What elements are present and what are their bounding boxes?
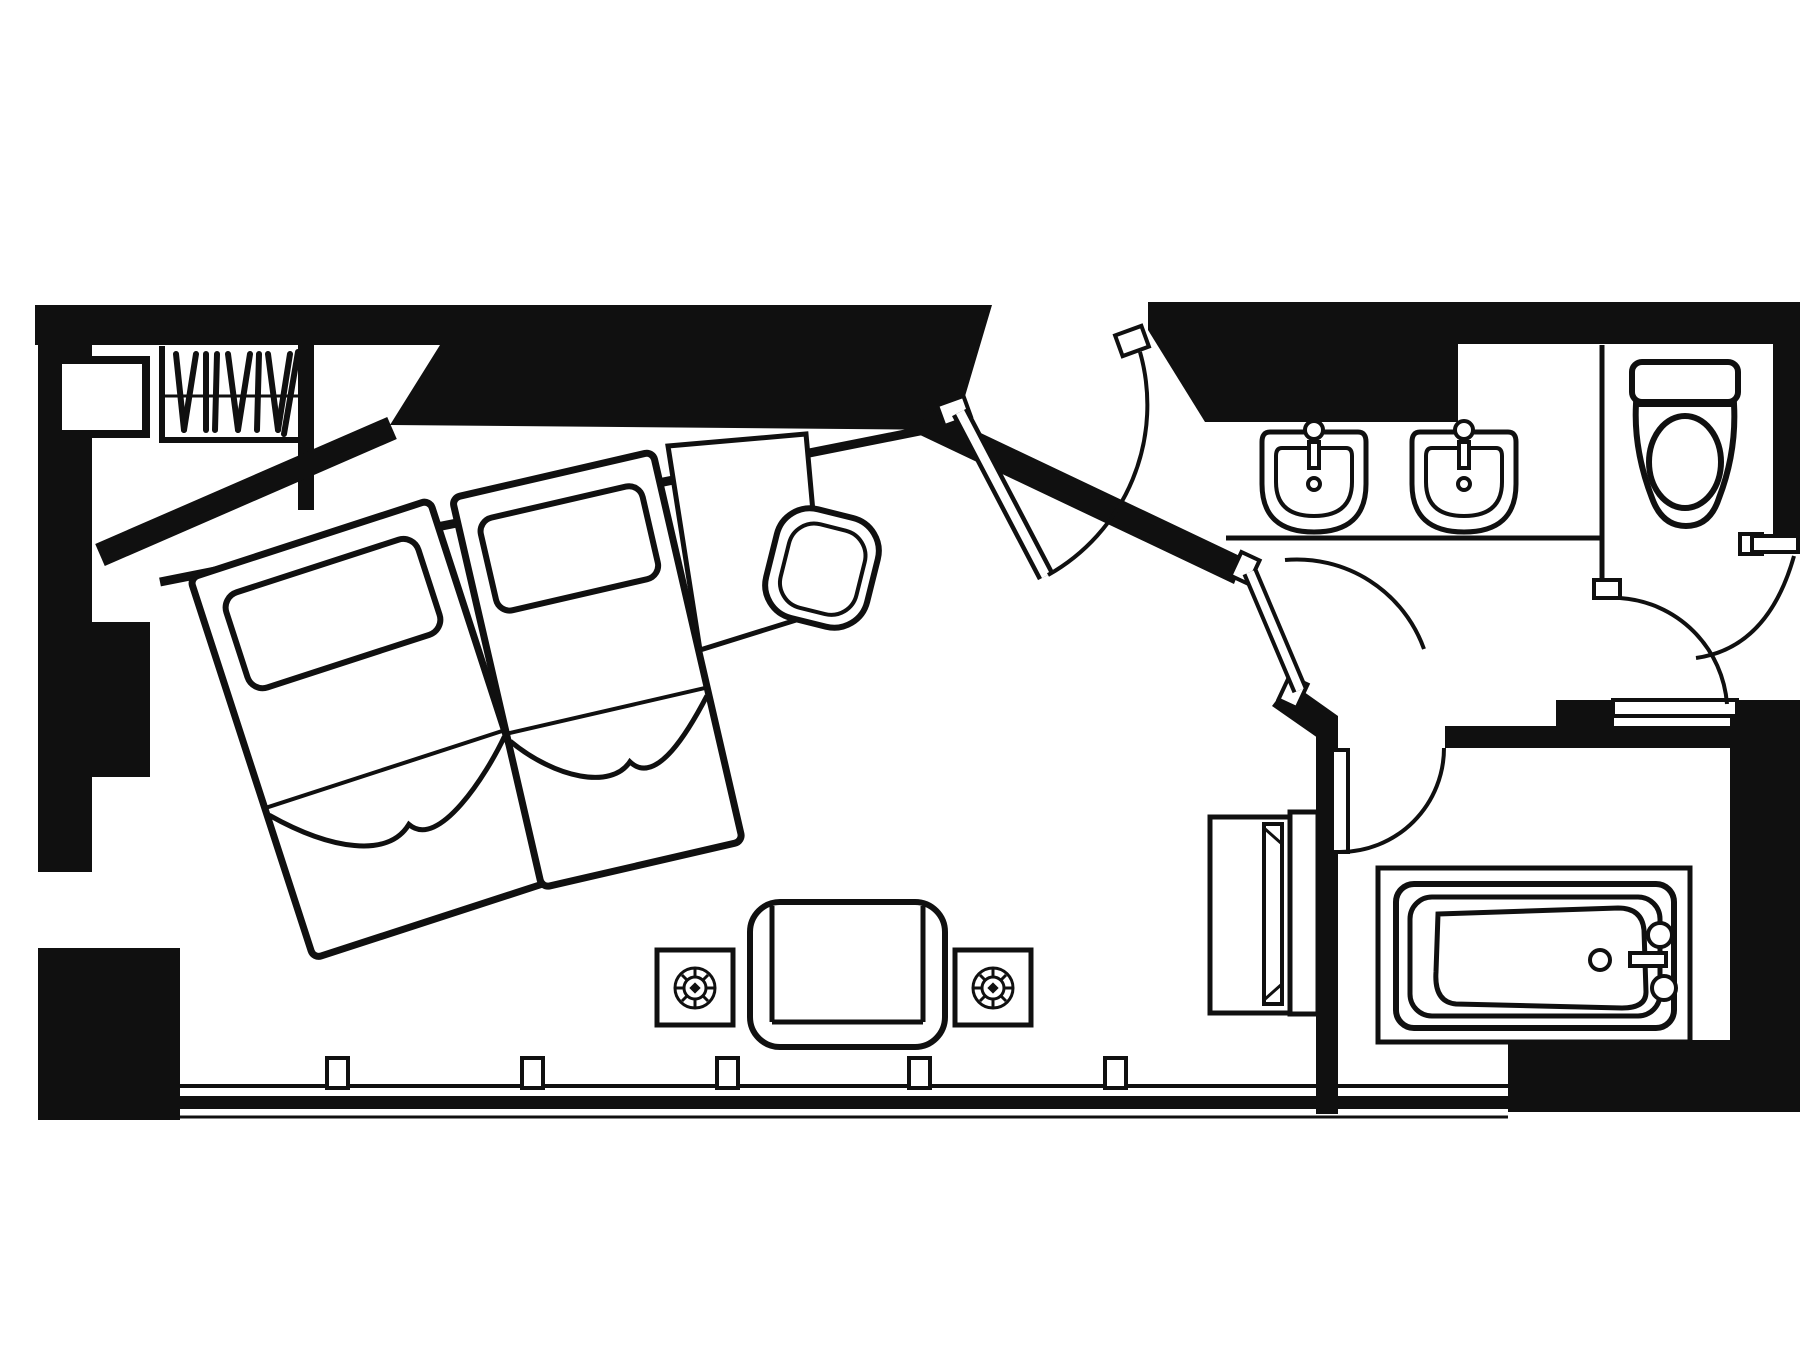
bathtub-room-door xyxy=(1332,748,1444,852)
floor-plan-page xyxy=(0,0,1800,1350)
left-wall-bottom-block xyxy=(38,948,180,1120)
side-table-with-lamp-right xyxy=(955,950,1031,1025)
sink-faucet xyxy=(1455,421,1473,439)
sofa-group xyxy=(657,902,1031,1047)
closet-nook xyxy=(58,346,302,440)
sink-drain xyxy=(1458,478,1470,490)
sink-faucet-stem xyxy=(1459,442,1469,468)
door-leaf xyxy=(1752,536,1798,552)
bottom-right-wall xyxy=(1508,1040,1733,1112)
door-swing-arc xyxy=(1340,748,1444,852)
window-glazing-band xyxy=(180,1096,1508,1109)
door-swing-arc xyxy=(1285,559,1424,649)
tub-faucet-bar xyxy=(1630,953,1666,966)
hangers xyxy=(176,352,298,434)
door-leaf xyxy=(1332,750,1348,852)
door-leaf xyxy=(1613,700,1737,716)
door-leaf-core xyxy=(1250,572,1300,690)
tub-faucet-knob xyxy=(1652,976,1676,1000)
toilet-room-door xyxy=(1594,580,1737,716)
mullion-post xyxy=(717,1058,738,1088)
side-table-with-lamp-left xyxy=(657,950,733,1025)
toilet-seat xyxy=(1649,416,1721,508)
door-hinge-jamb xyxy=(1115,326,1149,356)
vanity-sinks xyxy=(1262,421,1516,532)
sink-faucet xyxy=(1305,421,1323,439)
tub-faucet-knob xyxy=(1648,923,1672,947)
toilet-top-wall xyxy=(1458,302,1773,344)
tv-cabinet-group xyxy=(1210,812,1318,1014)
right-closet-door xyxy=(1696,534,1798,658)
desk-area xyxy=(668,434,886,650)
sink-left xyxy=(1262,421,1366,532)
mullion-post xyxy=(522,1058,543,1088)
mullion-post xyxy=(327,1058,348,1088)
right-wall-upper xyxy=(1773,302,1800,545)
table-lamp-icon xyxy=(675,968,715,1008)
sofa xyxy=(750,902,945,1047)
vanity-door xyxy=(1230,552,1424,708)
door-swing-arc xyxy=(1620,598,1727,704)
wardrobe-with-hangers xyxy=(162,346,302,440)
floor-plan-drawing xyxy=(0,0,1800,1350)
door-swing-arc xyxy=(1048,352,1147,575)
door-hinge-jamb xyxy=(1594,580,1620,598)
television xyxy=(1264,824,1282,1004)
bathtub-basin xyxy=(1436,908,1646,1008)
window-mullions xyxy=(327,1058,1126,1088)
sink-drain xyxy=(1308,478,1320,490)
mullion-post xyxy=(909,1058,930,1088)
sink-right xyxy=(1412,421,1516,532)
tub-drain xyxy=(1590,950,1610,970)
door-leaf-core xyxy=(960,412,1046,576)
bathtub-top-wall xyxy=(1445,726,1733,748)
door-swing-arc xyxy=(1696,556,1794,658)
tv-cabinet-side xyxy=(1290,812,1318,1014)
bathroom-top-wall xyxy=(1148,302,1458,422)
toilet-tank xyxy=(1632,362,1738,402)
right-wall-lower xyxy=(1730,700,1800,1112)
toilet xyxy=(1632,362,1738,526)
sink-faucet-stem xyxy=(1309,442,1319,468)
safe-shelf xyxy=(58,360,146,434)
window-wall xyxy=(180,1058,1508,1117)
table-lamp-icon xyxy=(973,968,1013,1008)
bathtub-group xyxy=(1378,868,1690,1042)
mullion-post xyxy=(1105,1058,1126,1088)
top-wall-left-thin xyxy=(35,305,445,345)
